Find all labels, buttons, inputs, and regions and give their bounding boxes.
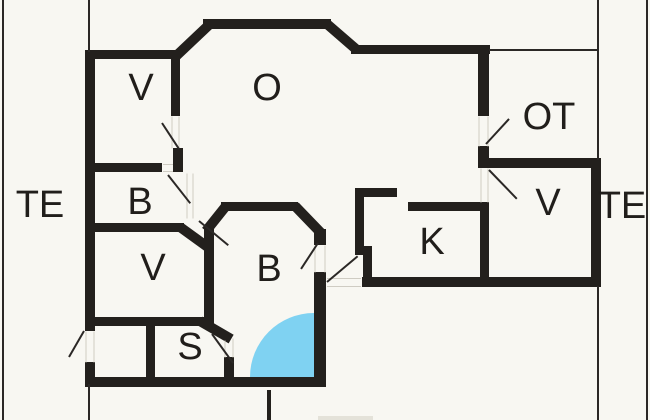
- door-swing-line: [300, 242, 319, 269]
- room-label-v-right: V: [535, 184, 560, 222]
- wall-segment: [351, 45, 490, 54]
- floor-plan: VOOTTEBVBKVTES: [0, 0, 650, 420]
- door-swing-line: [485, 118, 509, 144]
- wall-segment: [171, 55, 180, 116]
- wall-segment: [363, 246, 372, 287]
- wall-segment: [355, 188, 364, 254]
- wall-segment: [203, 19, 331, 29]
- wall-segment: [408, 202, 489, 211]
- wall-segment: [85, 50, 95, 331]
- door-gap-edge: [481, 168, 482, 202]
- wall-bevel: [171, 20, 214, 61]
- room-label-v-top-left: V: [128, 69, 153, 107]
- wall-segment: [85, 50, 180, 59]
- room-label-v-lower-left: V: [140, 249, 165, 287]
- wall-segment: [85, 317, 205, 326]
- room-label-b-center: B: [256, 250, 281, 288]
- wall-segment: [478, 158, 601, 168]
- room-label-o-living: O: [252, 69, 282, 107]
- wall-segment: [221, 202, 298, 211]
- wall-segment: [85, 377, 326, 387]
- door-gap-edge: [327, 286, 361, 287]
- door-gap-edge: [163, 164, 173, 165]
- room-label-k-kitchen: K: [419, 223, 444, 261]
- door-gap-edge: [325, 245, 326, 272]
- boundary-line: [597, 286, 599, 420]
- room-label-b-small: B: [127, 183, 152, 221]
- door-gap-edge: [163, 171, 173, 172]
- door-gap-edge: [187, 173, 188, 218]
- wall-bevel: [202, 203, 230, 234]
- door-gap-edge: [193, 173, 194, 218]
- room-label-te-right: TE: [598, 187, 647, 225]
- wall-segment: [95, 163, 162, 172]
- boundary-line: [88, 0, 90, 52]
- boundary-line: [489, 49, 599, 51]
- wall-segment: [314, 272, 326, 384]
- door-gap-edge: [233, 338, 234, 357]
- door-gap-edge: [94, 331, 95, 362]
- door-swing-line: [326, 255, 358, 283]
- door-gap-edge: [488, 168, 489, 202]
- boundary-line: [88, 384, 90, 420]
- watermark-fragment: [318, 416, 373, 420]
- wall-bevel: [291, 203, 324, 237]
- door-gap-edge: [86, 331, 87, 362]
- door-gap-edge: [172, 116, 173, 148]
- wall-segment: [267, 390, 271, 420]
- door-gap-edge: [179, 116, 180, 148]
- door-swing-line: [161, 122, 180, 149]
- wall-segment: [480, 202, 489, 287]
- door-swing-line: [488, 169, 517, 199]
- wall-segment: [478, 50, 489, 116]
- wall-segment: [95, 223, 184, 232]
- wall-segment: [173, 148, 183, 172]
- room-label-s-room: S: [177, 328, 202, 366]
- boundary-line: [597, 0, 599, 160]
- shower-quarter-circle: [250, 313, 314, 377]
- room-label-te-left: TE: [16, 186, 65, 224]
- boundary-line: [646, 0, 648, 420]
- wall-bevel: [324, 20, 361, 54]
- wall-segment: [146, 323, 155, 385]
- door-gap-edge: [479, 116, 480, 146]
- boundary-line: [2, 0, 4, 420]
- door-swing-line: [68, 331, 85, 358]
- room-label-ot-terrace: OT: [523, 98, 576, 136]
